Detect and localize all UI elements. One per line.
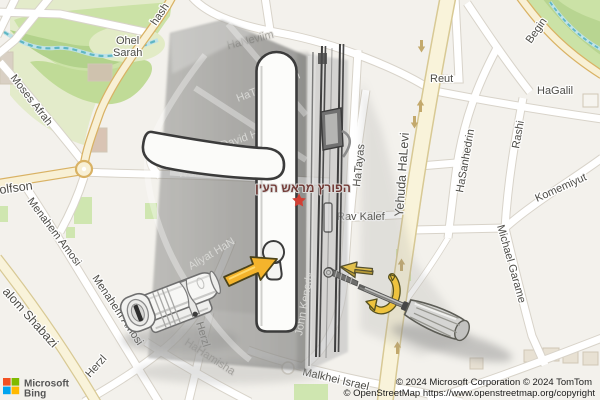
svg-text:הפורץ מראש העין: הפורץ מראש העין	[255, 181, 351, 195]
svg-text:Ohel: Ohel	[116, 35, 139, 47]
svg-text:© OpenStreetMap https://www.op: © OpenStreetMap https://www.openstreetma…	[344, 388, 596, 399]
svg-text:Reut: Reut	[430, 73, 453, 85]
svg-text:Bing: Bing	[24, 389, 46, 400]
svg-text:© 2024 Microsoft Corporation ©: © 2024 Microsoft Corporation © 2024 TomT…	[396, 377, 592, 388]
svg-text:Sarah: Sarah	[113, 47, 142, 59]
svg-text:HaGalil: HaGalil	[537, 85, 573, 97]
